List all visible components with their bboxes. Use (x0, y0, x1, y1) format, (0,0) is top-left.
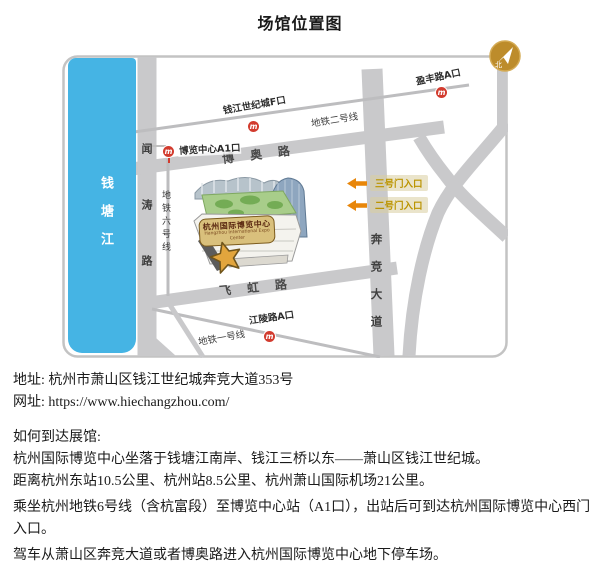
website-label: 网址: (13, 395, 45, 410)
gate3-label: 三号门入口 (370, 175, 428, 191)
address-value: 杭州市萧山区钱江世纪城奔竞大道353号 (48, 373, 293, 388)
address-line: 地址: 杭州市萧山区钱江世纪城奔竞大道353号 (13, 371, 591, 391)
road-label-benjing: 奔竞大道 (370, 233, 382, 343)
directions-title: 如何到达展馆: (13, 428, 591, 448)
page-title: 场馆位置图 (0, 10, 600, 34)
website-line: 网址: https://www.hiechangzhou.com/ (13, 393, 591, 413)
gate2-entrance: 二号门入口 (347, 197, 428, 213)
website-url: https://www.hiechangzhou.com/ (48, 395, 229, 410)
metro-icon: m (248, 121, 259, 132)
left-arrow-icon (347, 178, 367, 189)
gate2-label: 二号门入口 (370, 197, 428, 213)
directions-paragraph: 杭州国际博览中心坐落于钱塘江南岸、钱江三桥以东——萧山区钱江世纪城。 (13, 450, 591, 470)
qiantang-river: 钱塘江 (68, 58, 136, 353)
river-label: 钱塘江 (96, 176, 115, 260)
directions-paragraph: 驾车从萧山区奔竞大道或者博奥路进入杭州国际博览中心地下停车场。 (13, 546, 591, 566)
address-label: 地址: (13, 373, 45, 388)
compass-north-icon: 北 (489, 40, 521, 72)
left-arrow-icon (347, 200, 367, 211)
metro-icon: m (163, 146, 174, 157)
directions-paragraph: 距离杭州东站10.5公里、杭州站8.5公里、杭州萧山国际机场21公里。 (13, 472, 591, 492)
venue-location-page: 场馆位置图 (0, 0, 600, 581)
metro-icon: m (436, 87, 447, 98)
directions-paragraph: 乘坐杭州地铁6号线（含杭富段）至博览中心站（A1口），出站后可到达杭州国际博览中… (13, 497, 591, 541)
venue-map: 钱塘江 闻涛路 博奥路 飞虹路 奔竞大道 地铁六号线 地铁二号线 地铁一号线 钱… (62, 55, 508, 358)
metro-line6-label: 地铁六号线 (160, 190, 169, 255)
metro-icon: m (264, 331, 275, 342)
gate3-entrance: 三号门入口 (347, 175, 428, 191)
road-label-wentao: 闻涛路 (141, 143, 152, 311)
compass-north-text: 北 (495, 61, 502, 69)
